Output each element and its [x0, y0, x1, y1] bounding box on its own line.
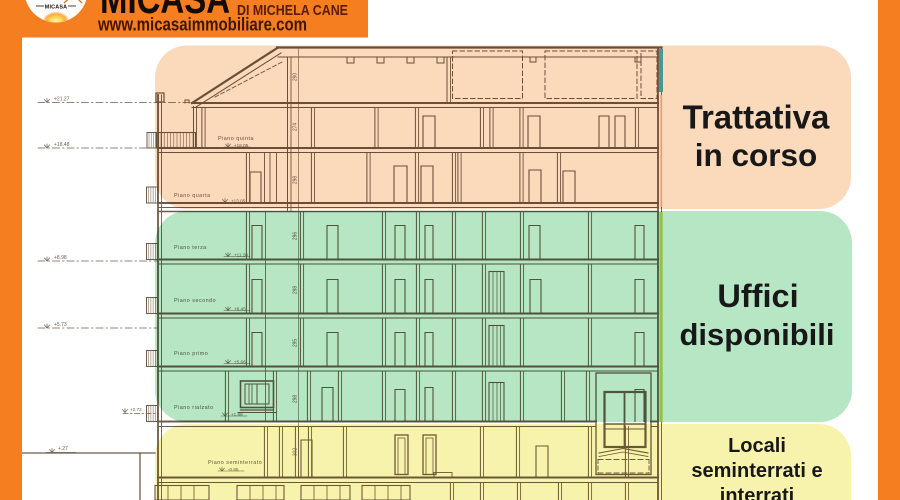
svg-text:+2.72: +2.72: [130, 407, 142, 412]
svg-text:interrati: interrati: [720, 485, 794, 500]
svg-text:Trattativa: Trattativa: [683, 99, 830, 136]
svg-text:seminterrati e: seminterrati e: [691, 460, 822, 482]
svg-text:Uffici: Uffici: [717, 278, 798, 314]
svg-text:+.27: +.27: [58, 446, 68, 452]
svg-text:+18.48: +18.48: [54, 142, 70, 148]
svg-text:+5.73: +5.73: [54, 322, 67, 328]
svg-text:Locali: Locali: [728, 435, 786, 457]
svg-text:disponibili: disponibili: [680, 317, 835, 352]
svg-text:+8.98: +8.98: [54, 255, 67, 261]
svg-text:+21.27: +21.27: [54, 97, 70, 103]
svg-text:MICASA: MICASA: [45, 5, 67, 11]
svg-text:www.micasaimmobiliare.com: www.micasaimmobiliare.com: [97, 14, 307, 35]
svg-text:in corso: in corso: [695, 137, 818, 173]
